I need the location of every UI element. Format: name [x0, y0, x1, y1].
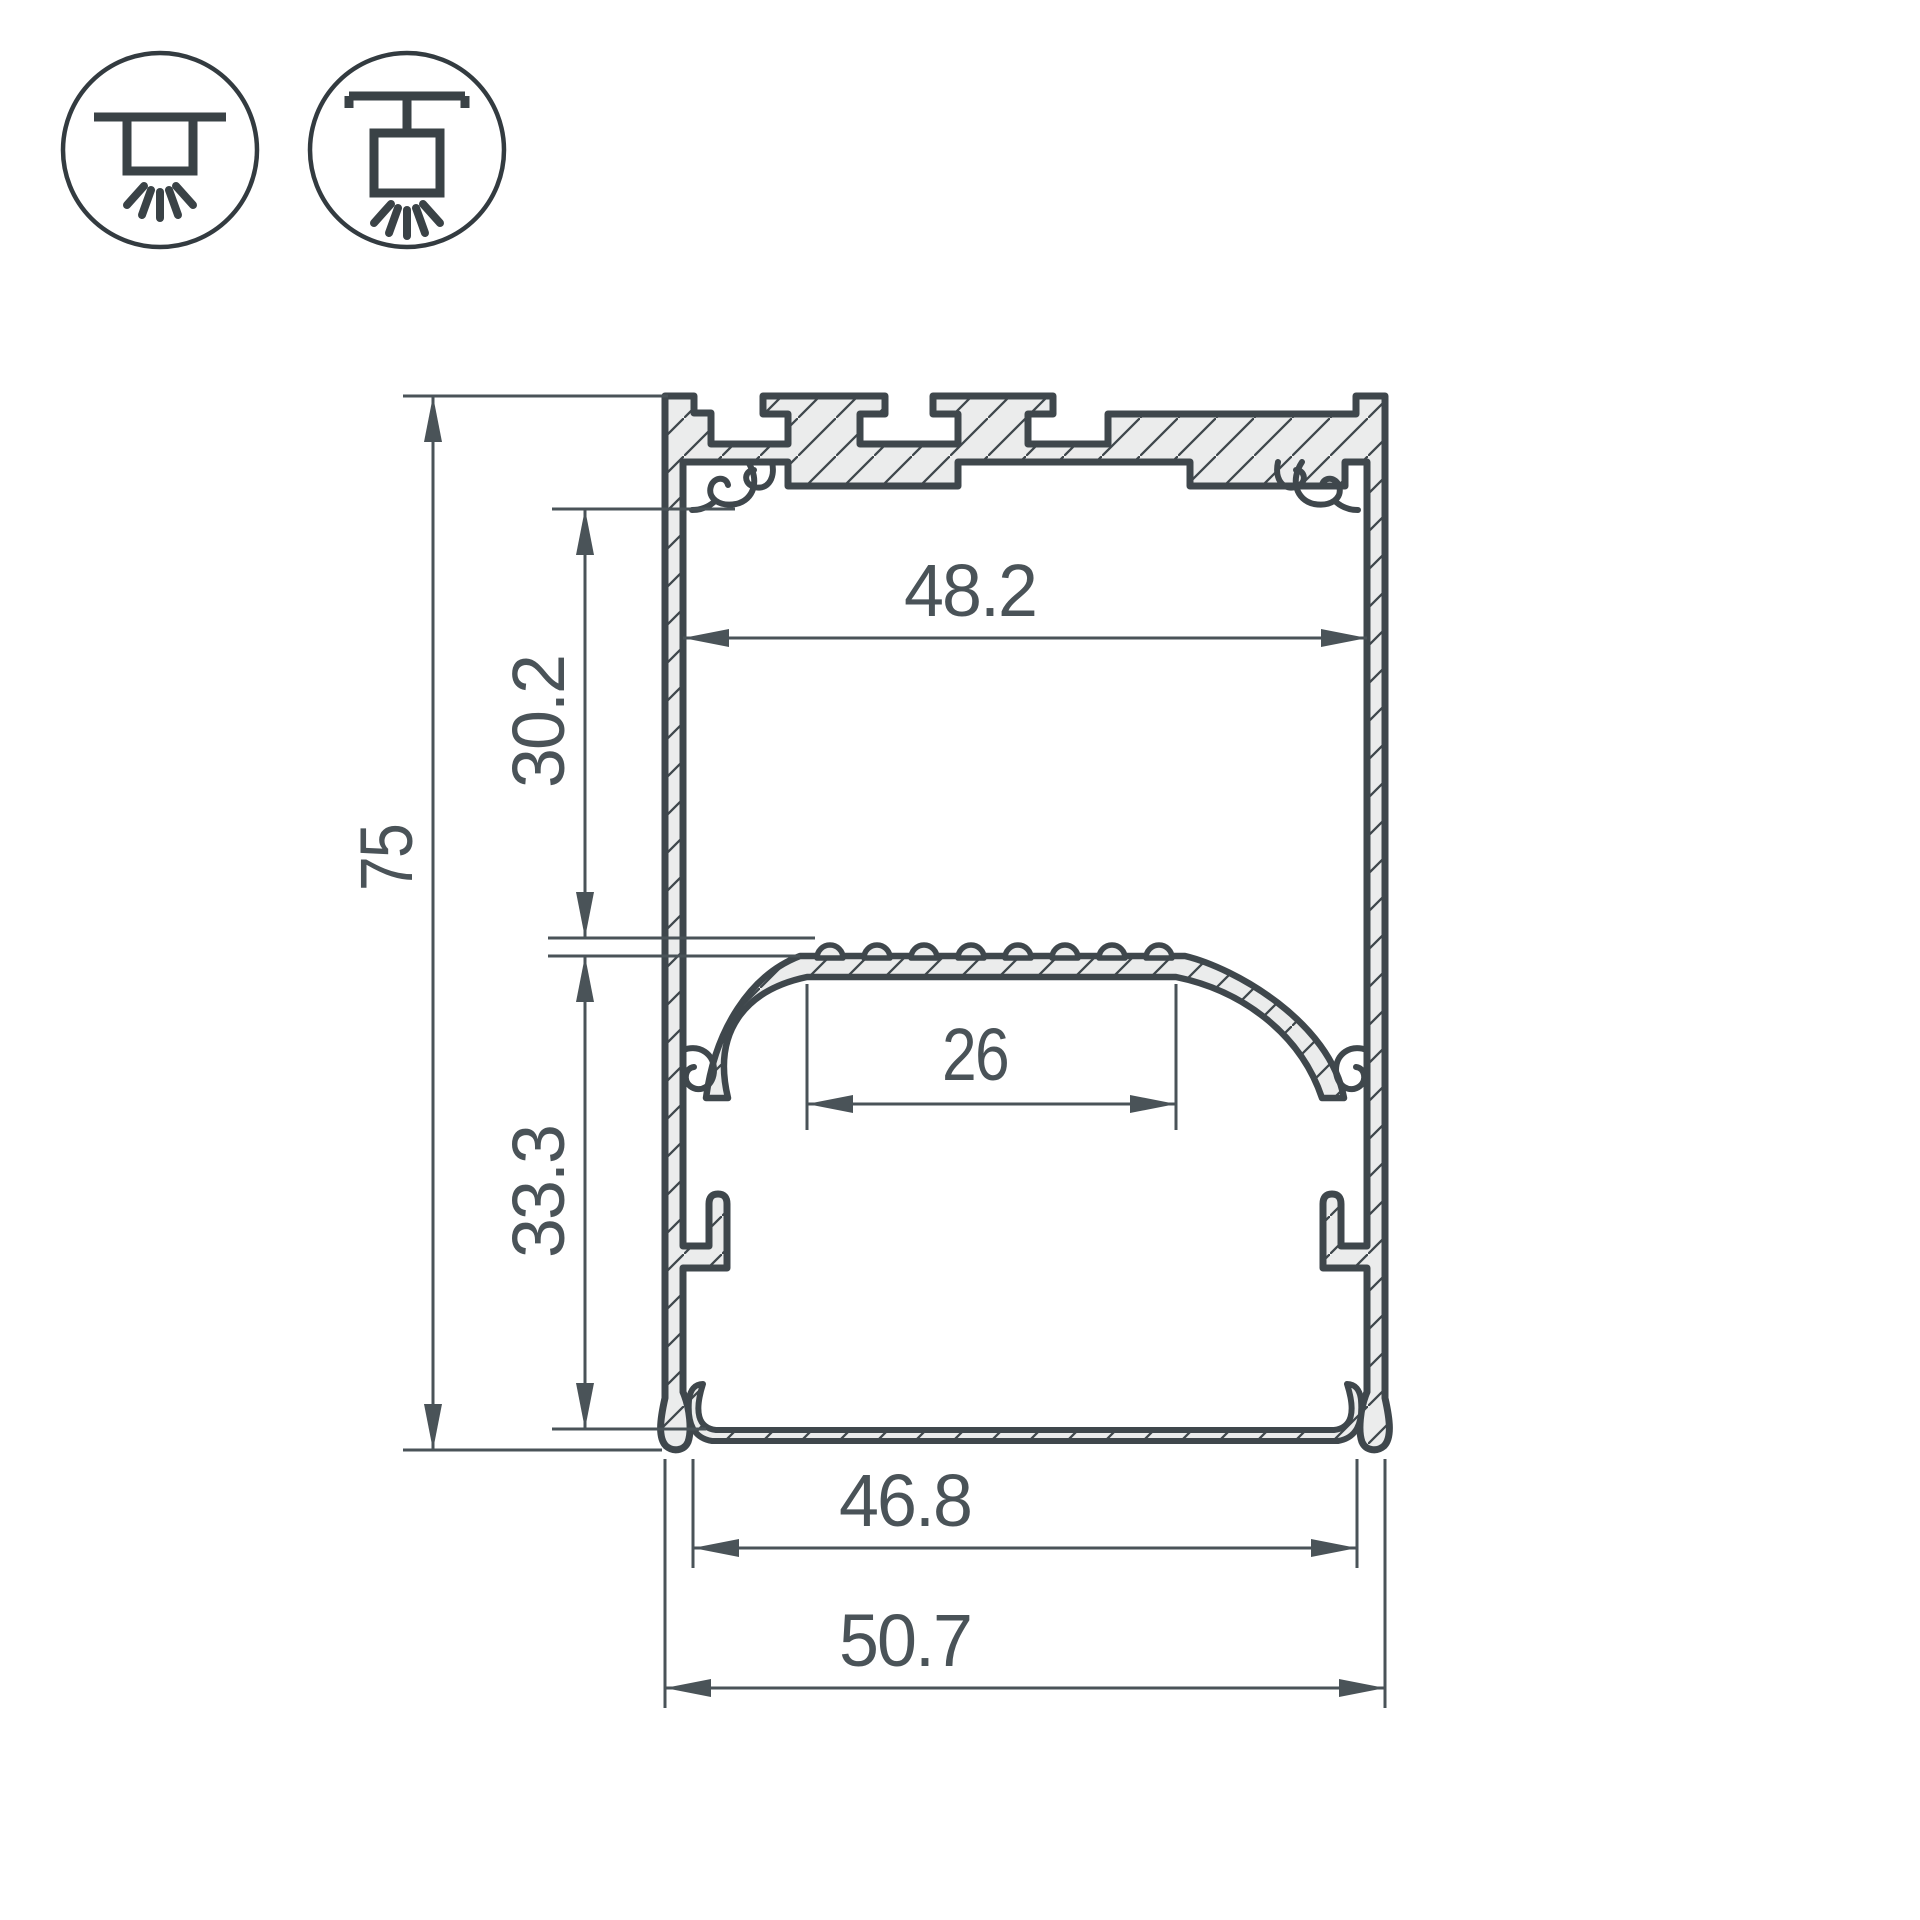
- dim-label-lower-chamber: 33.3: [497, 1126, 580, 1258]
- drawing-page: 48.2 30.2 33.3 75: [0, 0, 1920, 1920]
- dim-label-led-platform: 26: [942, 1013, 1008, 1096]
- dim-label-overall-width: 50.7: [839, 1599, 971, 1682]
- technical-drawing: 48.2 30.2 33.3 75: [0, 0, 1920, 1920]
- dim-label-upper-chamber: 30.2: [497, 656, 580, 788]
- dim-label-bottom-inner-width: 46.8: [839, 1459, 971, 1542]
- dim-label-overall-height: 75: [345, 825, 428, 891]
- dim-label-top-inner-width: 48.2: [904, 549, 1036, 632]
